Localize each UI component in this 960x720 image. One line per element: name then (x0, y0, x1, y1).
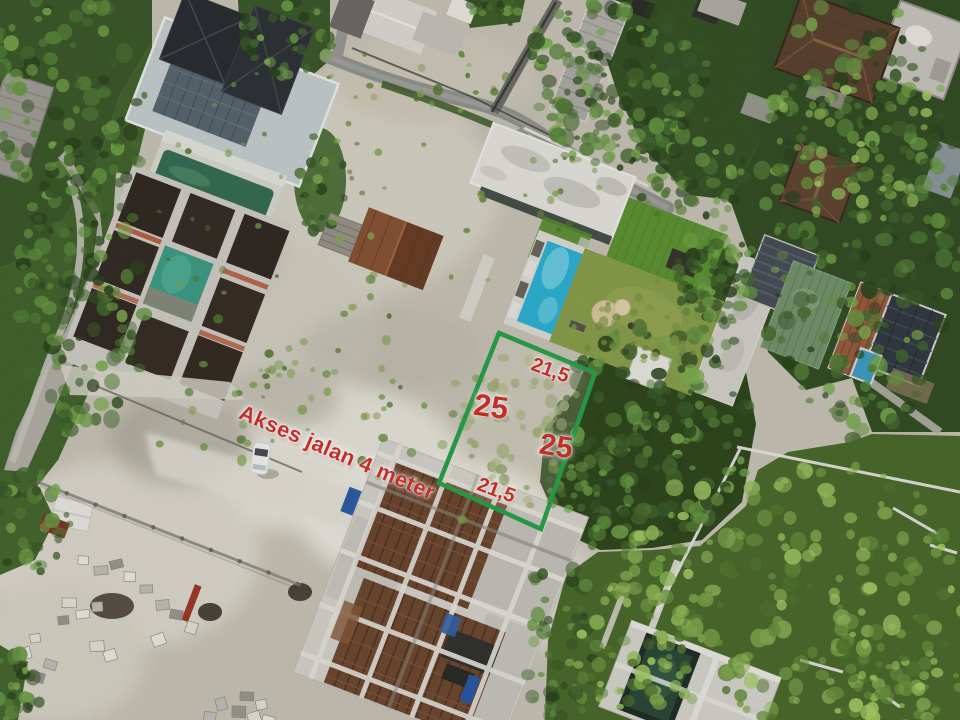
photo-grain (0, 0, 960, 720)
aerial-scene (0, 0, 960, 720)
drone-aerial-land-listing-photo: 21,5 25 25 21,5 Akses jalan 4 meter (0, 0, 960, 720)
dimension-label-right: 25 (537, 428, 575, 467)
dimension-label-left: 25 (471, 387, 510, 427)
